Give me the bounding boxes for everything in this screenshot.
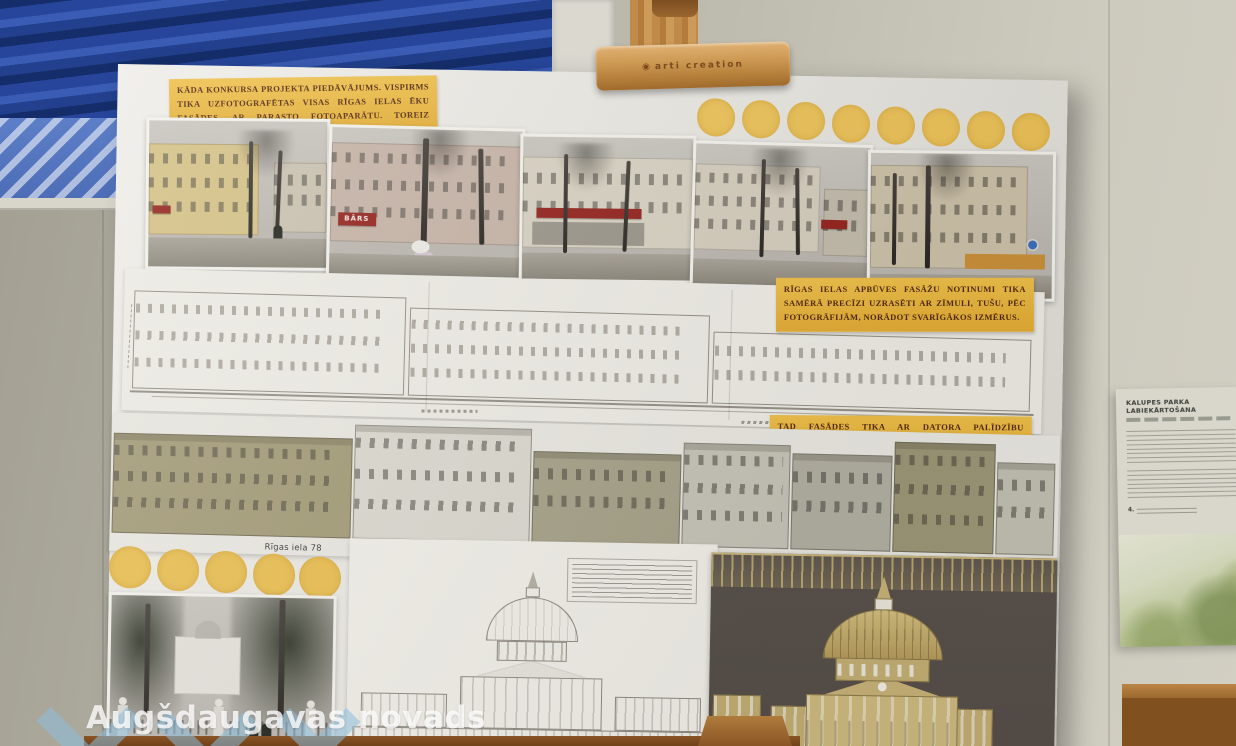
leaflet-item-lines <box>1136 505 1196 514</box>
easel-knob <box>652 0 698 17</box>
facade-next <box>892 442 996 554</box>
drawing-annotation-block <box>567 558 698 604</box>
white-church <box>174 636 241 695</box>
orange-storefront <box>965 254 1045 270</box>
facade-rigas-70a <box>790 453 892 551</box>
drawn-spire <box>528 571 538 587</box>
drawn-dome <box>486 597 579 643</box>
tree-trunk <box>248 142 253 238</box>
poster-board: KĀDA KONKURSA PROJEKTA PIEDĀVĀJUMS. VISP… <box>106 64 1068 746</box>
leaflet-paragraph <box>1126 427 1236 463</box>
pencil-facade-middle <box>408 308 710 404</box>
street-photo-1 <box>145 117 330 271</box>
drawn-drum <box>497 641 567 662</box>
yellow-dot <box>787 102 826 141</box>
yellow-dot <box>205 551 248 594</box>
tree-branches <box>747 148 812 202</box>
facade-rigas-72 <box>681 443 791 550</box>
yellow-dot <box>109 546 152 589</box>
drawn-lantern <box>526 587 540 597</box>
tree-branches <box>914 153 979 206</box>
leaflet-item-marker: 4. <box>1128 504 1236 514</box>
yellow-dot <box>922 108 961 147</box>
bars-sign: BĀRS <box>338 212 376 226</box>
annotation-note-2: RĪGAS IELAS APBŪVES FASĀŽU NOTINUMI TIKA… <box>776 278 1034 332</box>
facade-rigas-78 <box>111 433 352 539</box>
scene: ◉arti creation KĀDA KONKURSA PROJEKTA PI… <box>0 0 1236 746</box>
pedestrian-white-hat <box>411 240 429 253</box>
storefront-windows <box>532 222 644 246</box>
render-church-body <box>805 694 958 746</box>
red-shop-sign <box>152 205 170 213</box>
leaflet-subtitle-line <box>1126 416 1231 422</box>
yellow-dot <box>877 106 916 145</box>
leaflet-paragraph <box>1127 468 1236 498</box>
red-shop-sign <box>821 219 847 229</box>
drawn-pediment <box>476 660 586 678</box>
tree-trunk <box>924 165 930 269</box>
render-spire <box>877 576 891 598</box>
wall-leaflet: KALUPES PARKA LABIEKĀRTOŠANA 4. <box>1116 387 1236 647</box>
logo-mark-icon: ◉ <box>642 62 652 72</box>
yellow-dot <box>253 553 296 596</box>
wall-seam-left <box>102 205 104 746</box>
easel-logo: ◉arti creation <box>642 60 744 73</box>
render-gold-dome <box>823 608 944 660</box>
wall-seam-right <box>1108 0 1110 746</box>
pencil-facade-left <box>132 290 406 395</box>
tree-branches <box>407 129 472 183</box>
yellow-dot <box>1012 113 1051 152</box>
yellow-dot <box>967 111 1006 150</box>
easel-tray <box>84 736 800 746</box>
yellow-dot <box>832 104 871 143</box>
watermark-text: Augšdaugavas novads <box>86 700 486 736</box>
tree-branches <box>234 130 298 183</box>
street-photo-2: BĀRS <box>326 124 526 281</box>
render-lantern <box>875 598 893 610</box>
photo-street <box>148 237 326 268</box>
facade-rigas-76 <box>352 425 532 543</box>
photo-street <box>522 253 692 281</box>
easel-logo-text: arti creation <box>655 60 744 72</box>
facade-row <box>111 417 1058 556</box>
drawn-wing-right <box>614 697 701 732</box>
street-photo-3 <box>519 133 697 283</box>
shelf-top <box>1122 684 1236 698</box>
easel-clamp: ◉arti creation <box>595 41 790 90</box>
leaflet-green-map <box>1118 533 1236 647</box>
facade-rigas-74 <box>532 451 682 547</box>
render-drum <box>835 657 929 683</box>
leaflet-title: KALUPES PARKA LABIEKĀRTOŠANA <box>1126 397 1236 415</box>
handwritten-label <box>421 409 477 412</box>
yellow-dot <box>742 100 781 139</box>
yellow-dot <box>299 556 342 599</box>
address-label: Rīgas iela 78 <box>264 542 322 553</box>
yellow-dot <box>157 549 200 592</box>
facade-edge <box>995 462 1055 555</box>
yellow-dot <box>697 98 736 137</box>
easel-foot <box>698 716 792 746</box>
wooden-shelf <box>1122 684 1236 746</box>
render-clock <box>878 682 887 691</box>
street-photo-4 <box>690 140 874 291</box>
pencil-facade-right <box>712 332 1032 412</box>
tree-trunk <box>795 168 800 255</box>
